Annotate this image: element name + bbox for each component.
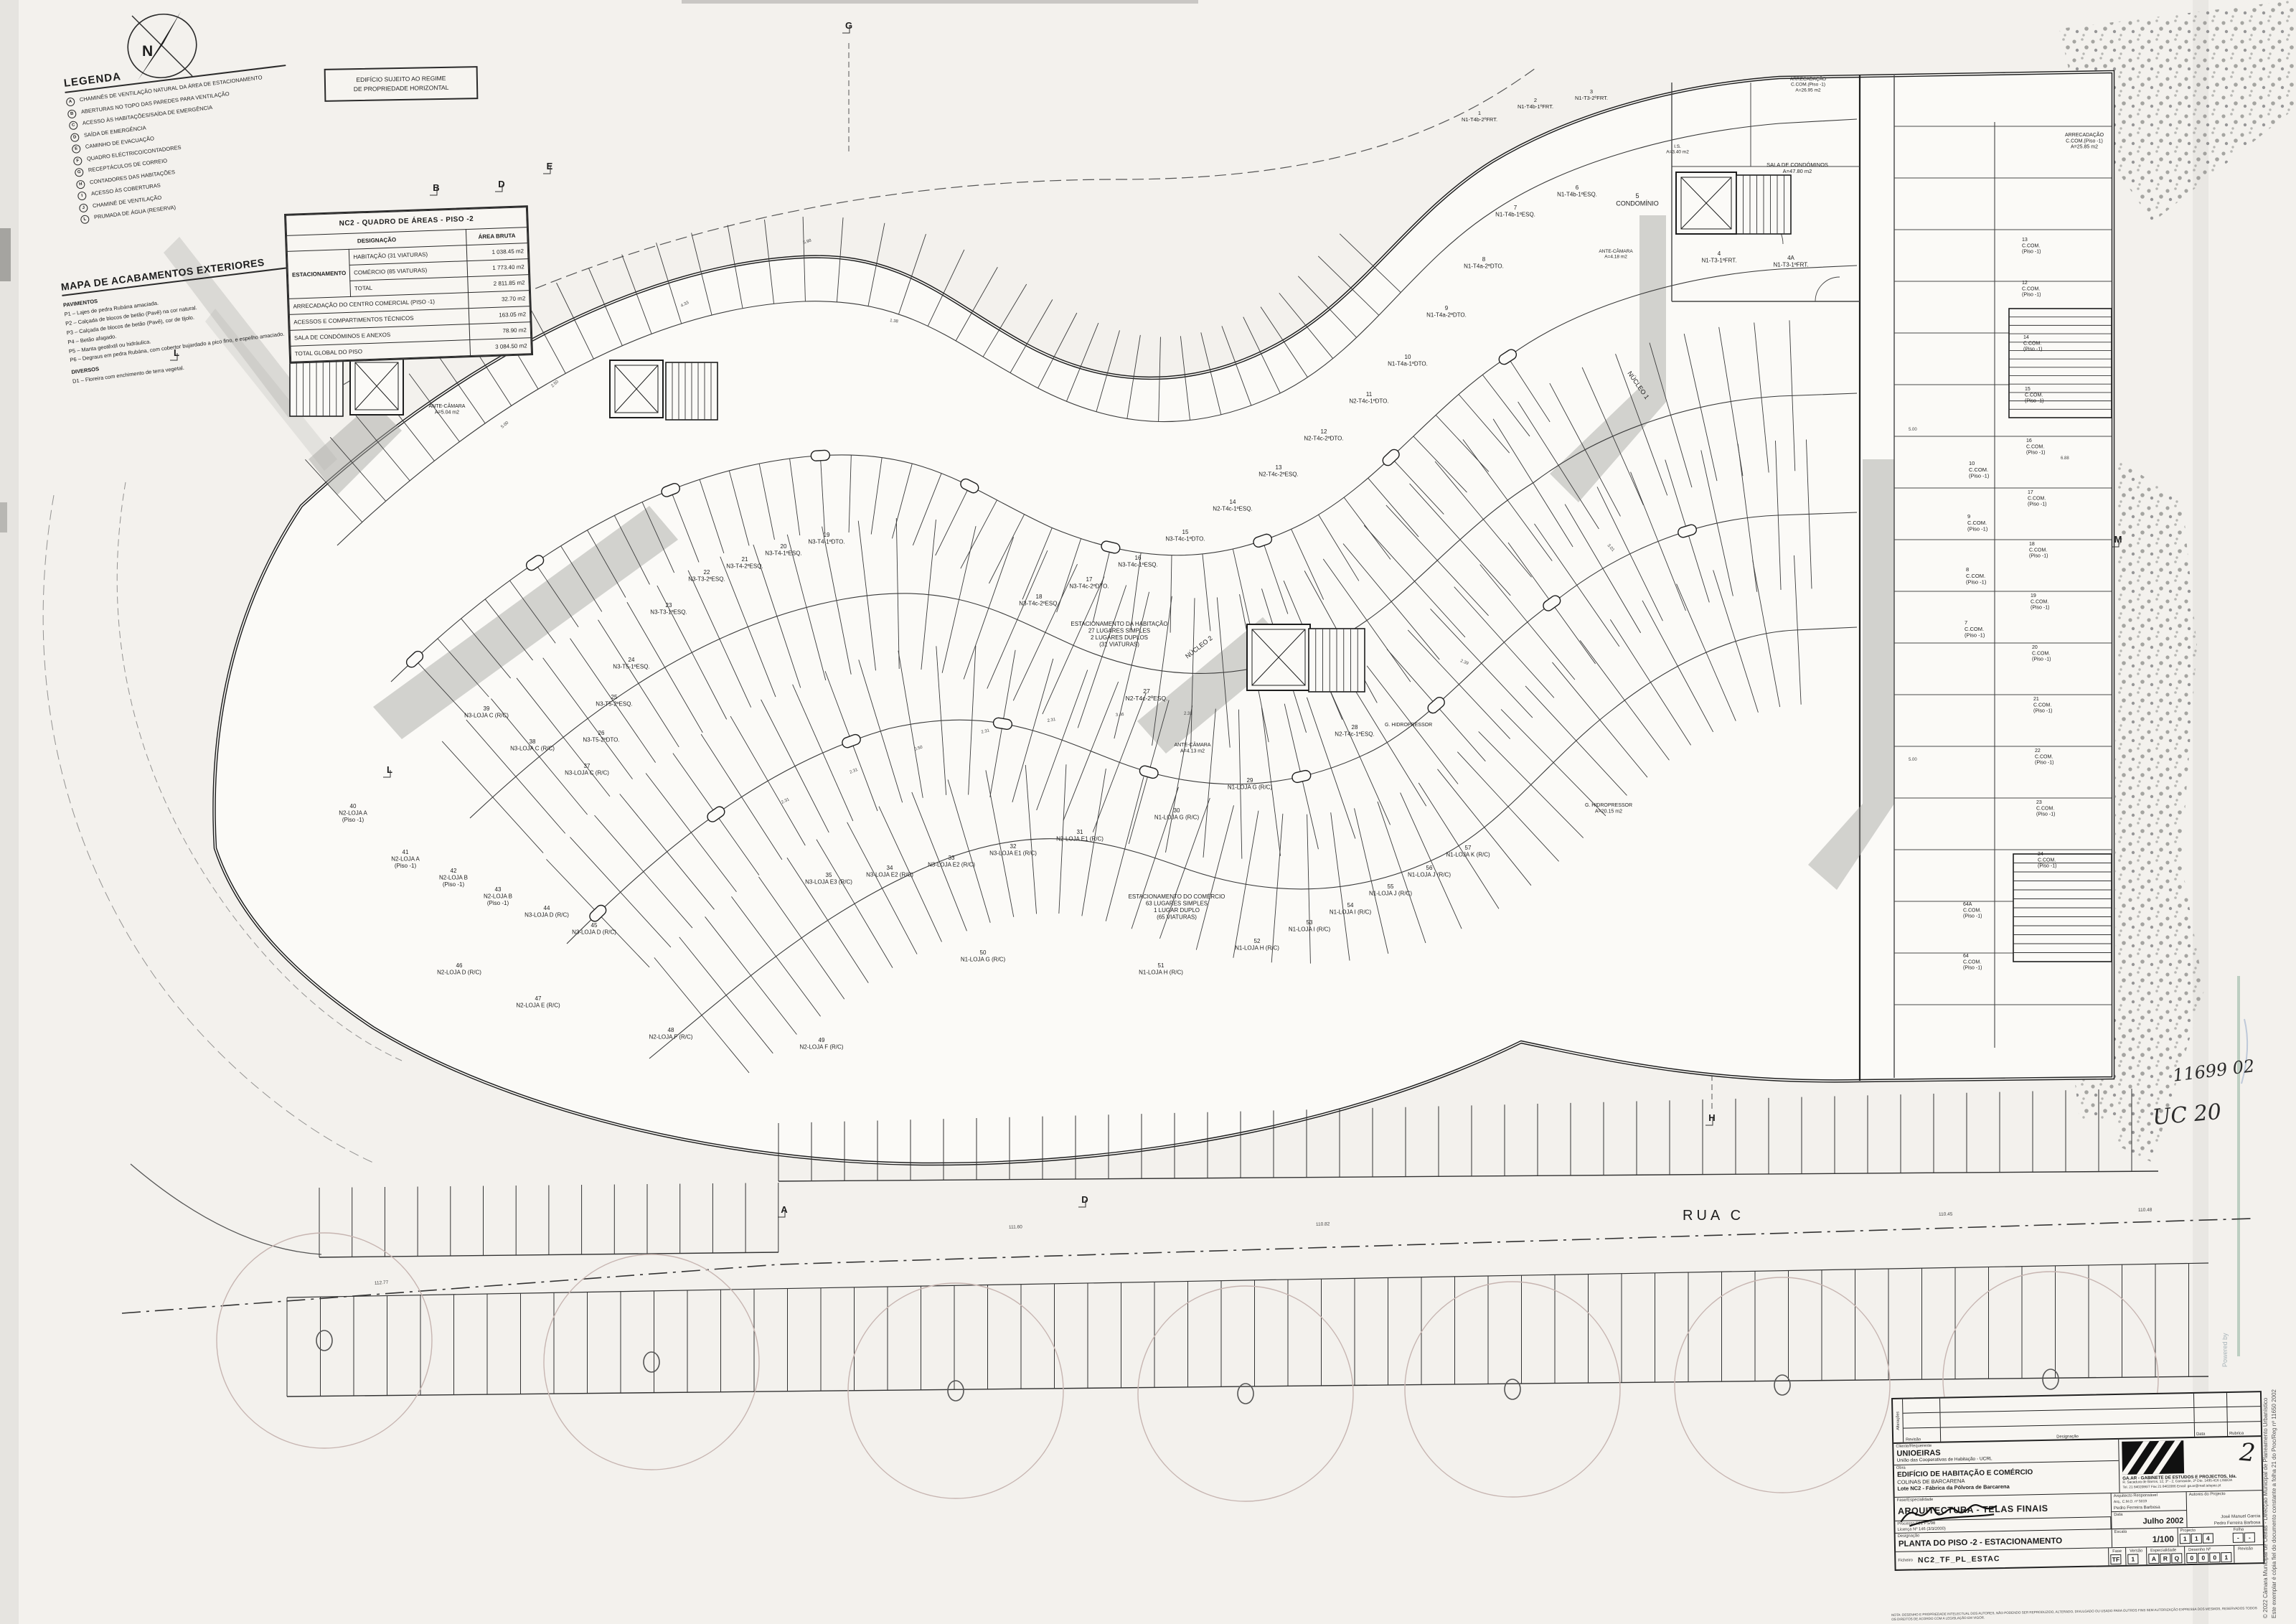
areas-group-estacionamento: ESTACIONAMENTO [287, 249, 351, 299]
legend-key-icon: J [79, 203, 88, 212]
legend-key-icon: E [72, 144, 81, 154]
stamp-line2: Este exemplar é cópia fiel do documento … [2270, 1389, 2279, 1618]
legend-key-icon: F [73, 156, 83, 165]
ficheiro-value: NC2_TF_PL_ESTAC [1915, 1553, 2003, 1566]
svg-text:N: N [142, 43, 153, 60]
areas-row-value: 1 038.45 m2 [467, 243, 528, 261]
drawing-sheet: N ESTACIONAMENTO DA HABITAÇÃO27 LUGARES … [0, 0, 2296, 1624]
parking-spot-label: G. HIDROPRESSOR [1385, 723, 1432, 728]
folha-cells: -- [2231, 1532, 2257, 1544]
tb-cell: - [2233, 1533, 2244, 1543]
handwritten-page-number: 2 [2239, 1438, 2257, 1468]
areas-row-value: 1 773.40 m2 [467, 259, 528, 277]
revisions-table: Alterações Revisão Designação Data Rubri… [1893, 1392, 2261, 1444]
parking-spot-label: 112.77 [375, 1280, 389, 1286]
grid-marker: M [2114, 534, 2122, 545]
parking-spot-label: 110.82 [1316, 1221, 1330, 1227]
parking-spot-label: 3.46 [1116, 713, 1125, 718]
parking-spot-label: 6.88 [2061, 456, 2069, 461]
areas-row-value: 78.90 m2 [469, 322, 530, 340]
tb-cell: 4 [2203, 1533, 2213, 1543]
parking-spot-label: ARRECADAÇÃOC.COM.(Piso -1)A=26.95 m2 [1790, 75, 1826, 93]
saar-logo-icon [2122, 1440, 2184, 1475]
espec-cells: ARQ [2148, 1553, 2183, 1564]
tb-cell: 1 [2221, 1552, 2231, 1562]
areas-row-value: 3 084.50 m2 [470, 338, 531, 356]
street-name-label: RUA C [1683, 1208, 1744, 1224]
legend-key-icon: D [70, 132, 80, 141]
legend-panel: LEGENDA ACHAMINÉS DE VENTILAÇÃO NATURAL … [63, 50, 302, 227]
grid-marker: B [433, 182, 439, 193]
revisions-side-label: Alterações [1896, 1412, 1900, 1430]
parking-spot-label: 3N1-T3-2ºFRT. [1575, 88, 1608, 101]
areas-row-value: 163.05 m2 [469, 306, 530, 324]
parking-spot-label: 1N1-T4b-2ºFRT. [1462, 110, 1497, 123]
processo-value: 521 PS/98 [1916, 1521, 1935, 1526]
grid-marker: D [1081, 1194, 1088, 1205]
tb-cell: 0 [2198, 1552, 2208, 1562]
parking-spot-label: 111.60 [1009, 1224, 1023, 1230]
legend-key-icon: G [75, 168, 84, 177]
legend-key-icon: A [66, 97, 75, 106]
rev-col-revisao: Revisão [1904, 1427, 1941, 1442]
grid-marker: A [781, 1204, 788, 1215]
title-block: Alterações Revisão Designação Data Rubri… [1891, 1391, 2265, 1571]
rev-col-data: Data [2195, 1422, 2228, 1437]
parking-spot-label: 2N1-T4b-1ºFRT. [1518, 97, 1553, 110]
versao-label: Versão [2127, 1548, 2145, 1554]
legend-key-icon: H [76, 179, 85, 189]
tb-cell: 0 [2186, 1553, 2197, 1563]
tb-cell: 1 [2191, 1534, 2202, 1544]
surface-parking [287, 1089, 2208, 1397]
tb-cell: A [2148, 1554, 2159, 1564]
processo-label: Processo [1897, 1521, 1914, 1526]
fase-col-value: TF [2110, 1554, 2121, 1564]
areas-row-value: 2 811.85 m2 [468, 275, 529, 293]
versao-value: 1 [2127, 1554, 2138, 1564]
legend-key-icon: L [80, 215, 90, 224]
tb-cell: Q [2171, 1553, 2182, 1563]
tb-cell: - [2244, 1532, 2255, 1542]
tb-cell: 1 [2180, 1534, 2191, 1544]
parking-spot-label: 5.00 [1909, 758, 1917, 762]
tb-cell: 0 [2209, 1552, 2220, 1562]
parking-spot-label: 5.98 [803, 238, 813, 245]
legend-key-icon: C [69, 121, 78, 130]
grid-marker: L [387, 764, 392, 775]
note-line2: DE PROPRIEDADE HORIZONTAL [330, 83, 472, 94]
legend-key-icon: I [77, 191, 87, 200]
stamp-line1: © 2022 Câmara Municipal de Oeiras - Dire… [2262, 1389, 2270, 1618]
grid-marker: G [845, 20, 852, 31]
grid-marker: E [547, 161, 553, 172]
parking-spot-label: 110.45 [1939, 1212, 1953, 1217]
areas-col-area: ÁREA BRUTA [466, 227, 527, 245]
municipal-stamp: © 2022 Câmara Municipal de Oeiras - Dire… [2262, 1389, 2279, 1618]
fase-col-label: Fase [2110, 1549, 2124, 1554]
grid-marker: D [498, 179, 504, 189]
areas-row-value: 32.70 m2 [469, 291, 530, 309]
ficheiro-label: Ficheiro [1896, 1557, 1915, 1564]
legend-key-icon: B [67, 109, 77, 118]
escala-value: 1/100 [2112, 1534, 2178, 1547]
grid-marker: H [1708, 1112, 1715, 1123]
revisao-label: Revisão [2236, 1546, 2262, 1552]
scanner-watermark: Powered by [2221, 1333, 2229, 1367]
tb-cell: R [2160, 1553, 2170, 1563]
parking-spot-label: 5.00 [1909, 428, 1917, 432]
parking-spot-label: 110.48 [2138, 1208, 2152, 1213]
rev-col-rubrica: Rubrica [2228, 1422, 2261, 1436]
desenho-cells: 0001 [2186, 1552, 2232, 1563]
firm-logo-box: 2 GA.AR - GABINETE DE ESTUDOS E PROJECTO… [2119, 1437, 2262, 1493]
areas-table: NC2 - QUADRO DE ÁREAS - PISO -2 DESIGNAÇ… [284, 205, 533, 364]
parking-spot-label: 2.31 [1184, 712, 1192, 716]
data-label: Data [2114, 1513, 2122, 1517]
projecto-cells: 114 [2178, 1533, 2216, 1545]
note-box: EDIFÍCIO SUJEITO AO REGIME DE PROPRIEDAD… [324, 66, 479, 101]
data-value: Julho 2002 [2112, 1516, 2186, 1529]
